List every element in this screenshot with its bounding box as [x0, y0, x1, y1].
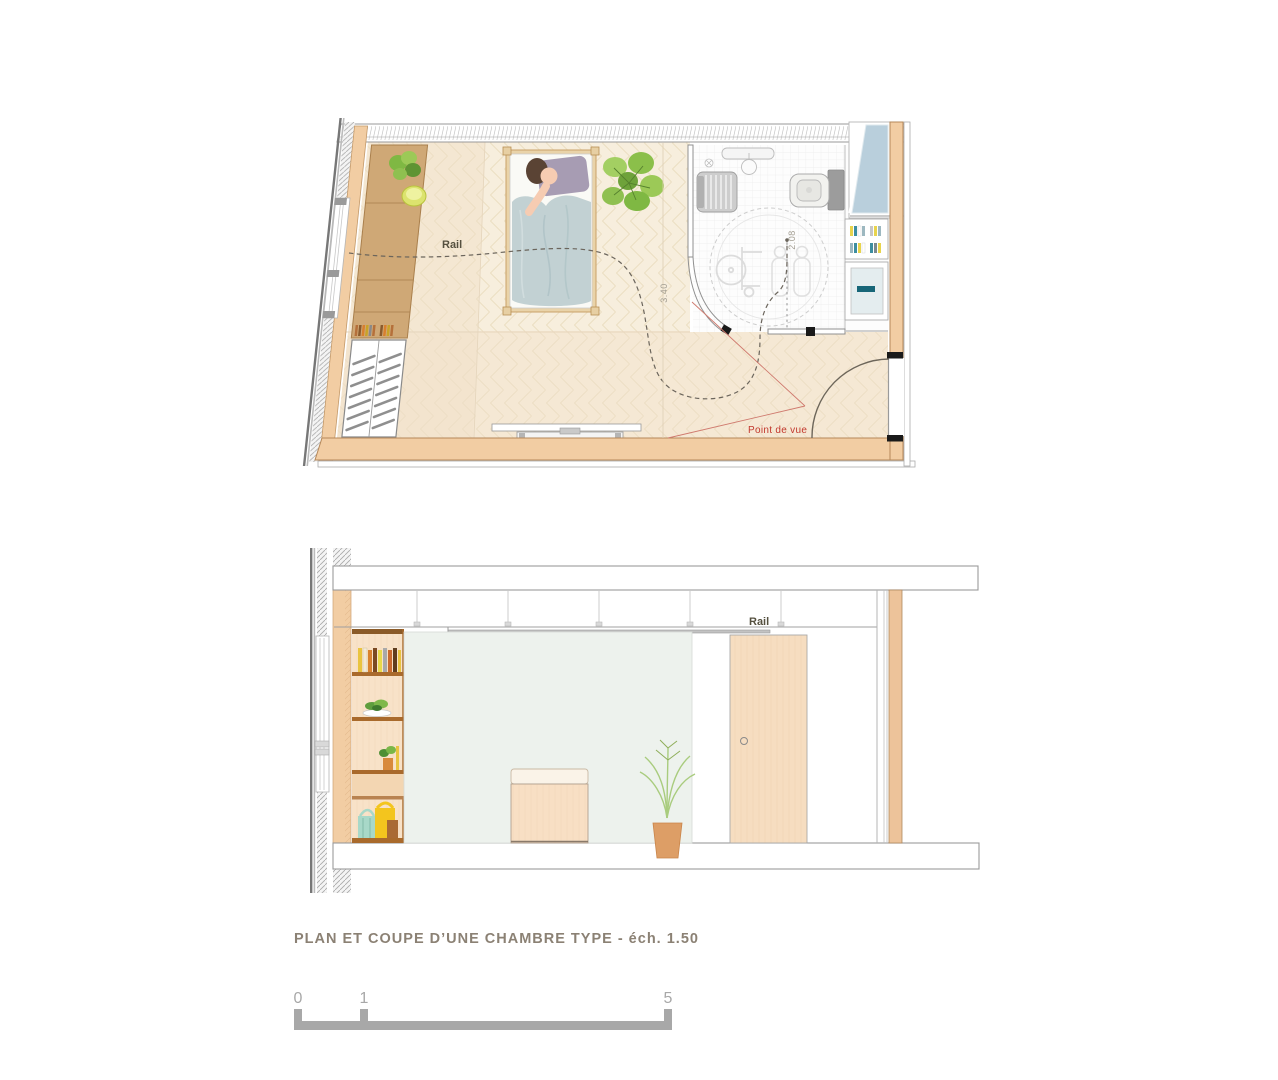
sink-cabinet — [845, 262, 888, 320]
washbasin — [742, 160, 757, 175]
dimension-bathroom: 2.08 — [787, 230, 797, 250]
section-sliding-door — [730, 635, 807, 843]
books-on-desk — [355, 325, 394, 336]
section-rail-label: Rail — [749, 616, 769, 628]
section-left-wall — [310, 548, 351, 893]
bed — [503, 147, 599, 315]
toilet — [790, 170, 844, 210]
section-right-wall — [877, 590, 902, 843]
faucet — [857, 286, 875, 292]
scale-tick-1: 1 — [360, 990, 369, 1007]
section-bed — [511, 769, 588, 843]
wall-end-cap — [806, 327, 815, 336]
scale-tick-5: 5 — [664, 990, 673, 1007]
top-wall-window-band — [337, 124, 908, 142]
caption-block: PLAN ET COUPE D’UNE CHAMBRE TYPE - éch. … — [294, 931, 699, 947]
suspended-ceiling — [334, 590, 877, 627]
section-window — [315, 636, 329, 792]
hanger-feet — [414, 622, 784, 626]
viewpoint-label: Point de vue — [748, 425, 807, 436]
plant-pot — [653, 823, 682, 858]
scale-tick-0: 0 — [294, 990, 303, 1007]
shelf-books — [358, 648, 401, 672]
shower-control-icon — [705, 159, 713, 167]
scale-bar: 0 1 5 — [294, 990, 673, 1030]
floor-plan: 3.40 2.08 Point de vue Rail — [303, 118, 915, 467]
bottom-wall — [315, 438, 915, 467]
door-opening — [888, 358, 904, 436]
architectural-drawing: 3.40 2.08 Point de vue Rail — [0, 0, 1278, 1080]
shower-seat — [697, 172, 737, 212]
blanket — [512, 195, 591, 306]
plan-rail-label: Rail — [442, 239, 462, 251]
wardrobe — [342, 340, 406, 437]
drawing-page: 3.40 2.08 Point de vue Rail — [0, 0, 1278, 1080]
ceiling-slab — [333, 566, 978, 590]
section-rail: Rail — [448, 616, 770, 633]
dimension-room-depth: 3.40 — [659, 283, 669, 303]
section-shelving — [352, 629, 404, 843]
drawing-title: PLAN ET COUPE D’UNE CHAMBRE TYPE - éch. … — [294, 931, 699, 947]
fruit-bowl — [402, 186, 426, 206]
towel-niche — [845, 219, 888, 259]
section-drawing: Rail — [310, 548, 979, 893]
